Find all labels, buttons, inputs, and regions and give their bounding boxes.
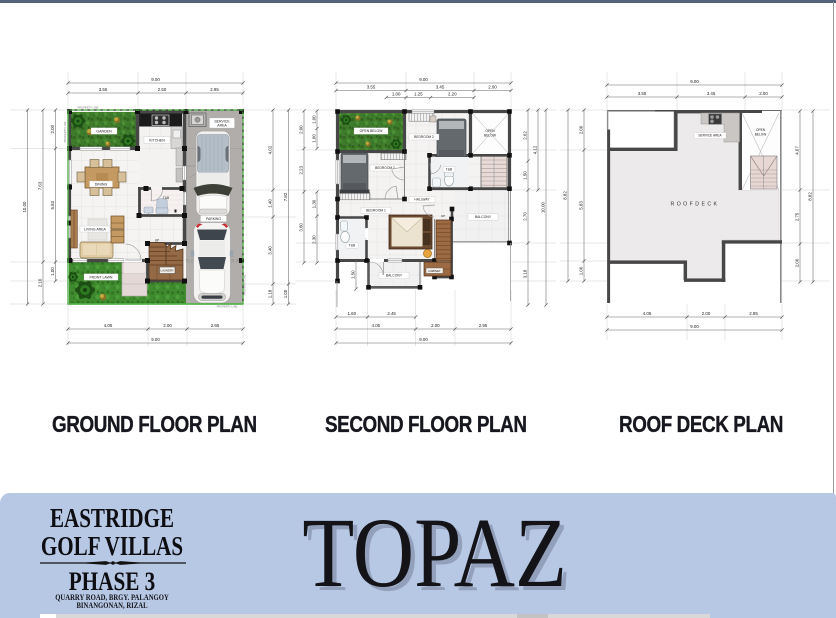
- svg-text:3.40: 3.40: [267, 246, 272, 255]
- svg-text:3.55: 3.55: [99, 87, 108, 92]
- svg-text:T&B: T&B: [163, 196, 169, 200]
- svg-text:T&B: T&B: [446, 168, 453, 172]
- svg-text:2.00: 2.00: [794, 258, 799, 267]
- svg-text:7.82: 7.82: [283, 192, 288, 201]
- svg-text:BALCONY: BALCONY: [386, 274, 403, 278]
- svg-text:T&B: T&B: [349, 244, 356, 248]
- svg-text:1.00: 1.00: [311, 115, 316, 124]
- svg-text:2.62: 2.62: [522, 131, 527, 140]
- svg-text:2.16: 2.16: [37, 278, 42, 287]
- svg-text:OPEN BELOW: OPEN BELOW: [360, 129, 384, 133]
- svg-text:PARKING: PARKING: [206, 217, 221, 221]
- svg-text:HALLWAY: HALLWAY: [414, 198, 430, 202]
- svg-text:2.95: 2.95: [749, 311, 758, 316]
- svg-text:1.40: 1.40: [267, 199, 272, 208]
- svg-text:3.18: 3.18: [522, 269, 527, 278]
- svg-text:4.05: 4.05: [643, 311, 652, 316]
- svg-text:LIVING AREA: LIVING AREA: [84, 227, 106, 231]
- svg-text:2.00: 2.00: [163, 323, 172, 328]
- svg-text:2.00: 2.00: [50, 124, 55, 133]
- svg-text:2.50: 2.50: [158, 87, 167, 92]
- svg-text:5.83: 5.83: [578, 201, 583, 210]
- svg-text:2.00: 2.00: [578, 125, 583, 134]
- svg-text:UP: UP: [441, 214, 445, 218]
- svg-text:DINING: DINING: [95, 182, 108, 186]
- svg-text:3.55: 3.55: [638, 91, 647, 96]
- svg-text:2.20: 2.20: [448, 92, 457, 97]
- svg-text:2.95: 2.95: [210, 87, 219, 92]
- svg-text:2.00: 2.00: [431, 323, 440, 328]
- svg-text:4.05: 4.05: [104, 323, 113, 328]
- svg-text:8.82: 8.82: [562, 191, 567, 200]
- svg-text:10.00: 10.00: [540, 201, 545, 213]
- svg-text:2.23: 2.23: [298, 165, 303, 174]
- svg-text:BELOW: BELOW: [484, 134, 497, 138]
- svg-text:9.00: 9.00: [151, 77, 160, 82]
- svg-text:BALCONY: BALCONY: [475, 215, 492, 219]
- svg-text:1.00: 1.00: [392, 92, 401, 97]
- svg-text:SERVICE AREA: SERVICE AREA: [698, 134, 722, 138]
- svg-text:4.07: 4.07: [794, 146, 799, 155]
- svg-text:3.55: 3.55: [367, 85, 376, 90]
- svg-text:CABINET: CABINET: [428, 269, 441, 273]
- svg-text:1.00: 1.00: [283, 289, 288, 298]
- svg-text:BEDROOM 2: BEDROOM 2: [414, 135, 434, 139]
- svg-text:BELOW: BELOW: [755, 133, 767, 137]
- svg-text:PROPERTY LINE: PROPERTY LINE: [217, 305, 238, 309]
- svg-text:OPEN: OPEN: [485, 129, 495, 133]
- svg-text:1.00: 1.00: [50, 267, 55, 276]
- svg-text:4.02: 4.02: [267, 145, 272, 154]
- svg-text:AREA: AREA: [217, 123, 227, 127]
- svg-text:BEDROOM 1: BEDROOM 1: [366, 209, 386, 213]
- svg-text:PROPERTY LINE: PROPERTY LINE: [243, 274, 247, 295]
- svg-text:OPEN: OPEN: [756, 128, 766, 132]
- svg-text:9.00: 9.00: [419, 77, 428, 82]
- svg-text:5.83: 5.83: [50, 200, 55, 209]
- svg-text:3.45: 3.45: [707, 91, 716, 96]
- svg-text:1.60: 1.60: [347, 311, 356, 316]
- svg-text:2.00: 2.00: [298, 125, 303, 134]
- svg-text:PROPERTY LINE: PROPERTY LINE: [63, 121, 67, 142]
- svg-text:2.70: 2.70: [522, 212, 527, 221]
- svg-text:2.45: 2.45: [387, 311, 396, 316]
- svg-text:LAUNDRY: LAUNDRY: [161, 269, 174, 273]
- svg-text:9.00: 9.00: [419, 337, 428, 342]
- svg-text:UP: UP: [155, 238, 159, 242]
- svg-text:PROPERTY LINE: PROPERTY LINE: [78, 106, 99, 110]
- svg-text:7.63: 7.63: [37, 181, 42, 190]
- svg-text:1.00: 1.00: [311, 134, 316, 143]
- svg-text:10.00: 10.00: [22, 201, 27, 213]
- svg-text:1.50: 1.50: [350, 270, 355, 279]
- svg-text:1.25: 1.25: [414, 92, 423, 97]
- svg-text:3.45: 3.45: [436, 85, 445, 90]
- svg-text:2.95: 2.95: [211, 323, 220, 328]
- svg-text:3.60: 3.60: [298, 223, 303, 232]
- svg-text:R O O F D E C K: R O O F D E C K: [671, 202, 718, 208]
- svg-text:1.18: 1.18: [267, 289, 272, 298]
- svg-text:1.50: 1.50: [522, 171, 527, 180]
- svg-text:2.00: 2.00: [488, 85, 497, 90]
- svg-text:9.00: 9.00: [690, 324, 699, 329]
- svg-text:2.95: 2.95: [479, 323, 488, 328]
- svg-text:KITCHEN: KITCHEN: [149, 138, 165, 142]
- svg-text:4.12: 4.12: [532, 145, 537, 154]
- svg-text:FRONT LAWN: FRONT LAWN: [90, 275, 113, 279]
- svg-text:2.75: 2.75: [794, 212, 799, 221]
- svg-text:9.00: 9.00: [151, 337, 160, 342]
- svg-text:GARDEN: GARDEN: [96, 129, 112, 133]
- svg-text:2.00: 2.00: [759, 91, 768, 96]
- svg-text:1.30: 1.30: [311, 199, 316, 208]
- svg-text:4.05: 4.05: [372, 323, 381, 328]
- svg-text:8.82: 8.82: [807, 192, 812, 201]
- svg-text:2.30: 2.30: [311, 235, 316, 244]
- svg-text:2.00: 2.00: [702, 311, 711, 316]
- svg-text:1.00: 1.00: [578, 266, 583, 275]
- svg-text:9.00: 9.00: [690, 79, 699, 84]
